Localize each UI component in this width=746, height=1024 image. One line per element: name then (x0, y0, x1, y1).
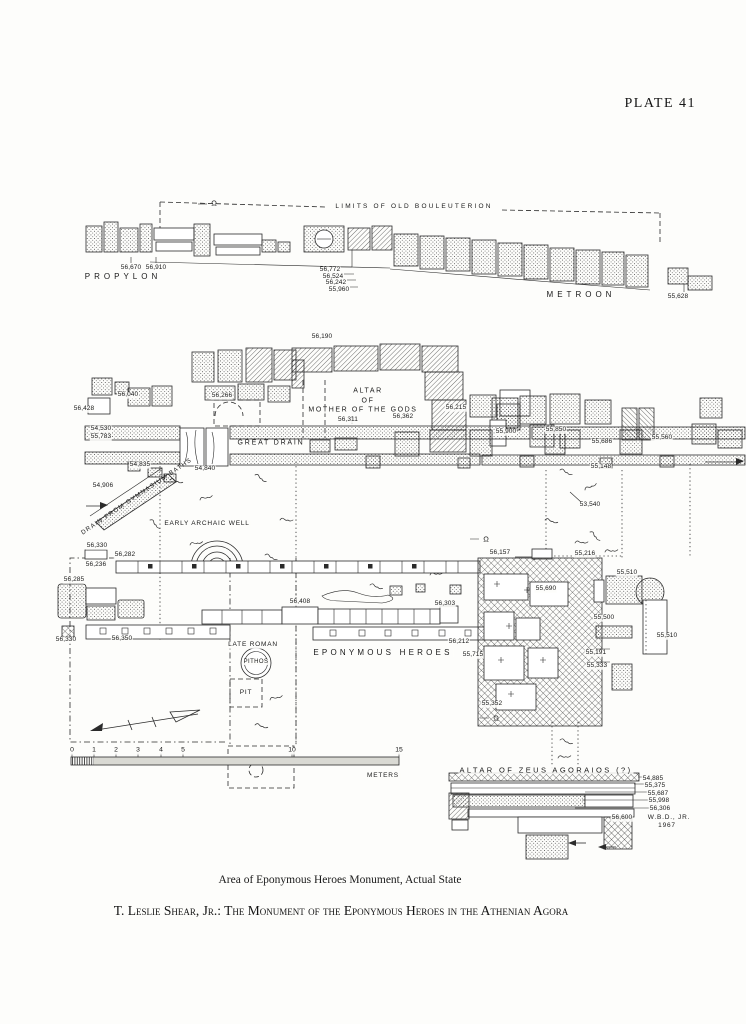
label-great-drain: GREAT DRAIN (237, 440, 306, 447)
elevation-label: 56,910 (145, 265, 167, 272)
label-pithos: PITHOS (243, 659, 270, 665)
elevation-label: 55,850 (545, 427, 567, 434)
elevation-label: 56,266 (211, 393, 233, 400)
elevation-label: 56,350 (111, 636, 133, 643)
elevation-label: 56,285 (63, 577, 85, 584)
plan-labels-layer: LIMITS OF OLD BOULEUTERIONΩPROPYLONMETRO… (0, 0, 746, 1024)
elevation-label: 56,236 (85, 562, 107, 569)
elevation-label: 55,500 (593, 615, 615, 622)
elevation-label: 54,530 (90, 426, 112, 433)
label-early-archaic-well: EARLY ARCHAIC WELL (163, 521, 250, 528)
elevation-label: 56,408 (289, 599, 311, 606)
elevation-label: 55,960 (328, 287, 350, 294)
elevation-label: 55,715 (462, 652, 484, 659)
elevation-label: 55,560 (651, 435, 673, 442)
scale-tick-label: 4 (158, 748, 164, 755)
elevation-label: 55,352 (481, 701, 503, 708)
credit-draftsman: W.B.D., JR. (647, 815, 691, 822)
scale-tick-label: 1 (91, 748, 97, 755)
elevation-label: 56,282 (114, 552, 136, 559)
scale-unit-label: METERS (366, 773, 400, 780)
elevation-label: 56,311 (337, 417, 359, 424)
label-eponymous-heroes: EPONYMOUS HEROES (312, 649, 453, 657)
elevation-label: 56,215 (445, 405, 467, 412)
elevation-label: 56,428 (73, 406, 95, 413)
section-marker-omega: Ω (482, 535, 490, 543)
plan-drawing: LIMITS OF OLD BOULEUTERIONΩPROPYLONMETRO… (0, 0, 746, 1024)
label-altar-of-mother-line1: ALTAR (352, 388, 384, 395)
elevation-label: 56,040 (117, 392, 139, 399)
elevation-label: 55,148 (590, 464, 612, 471)
elevation-label: 55,783 (90, 434, 112, 441)
elevation-label: 55,510 (656, 633, 678, 640)
scale-tick-label: 5 (180, 748, 186, 755)
scale-tick-label: 15 (394, 748, 404, 755)
elevation-label: 56,157 (489, 550, 511, 557)
scale-tick-label: 2 (113, 748, 119, 755)
elevation-label: 55,686 (591, 439, 613, 446)
elevation-label: 56,670 (120, 265, 142, 272)
section-marker-omega: Ω (210, 199, 218, 207)
elevation-label: 54,835 (129, 462, 151, 469)
elevation-label: 55,333 (586, 663, 608, 670)
elevation-label: 56,600 (611, 815, 633, 822)
scale-tick-label: 10 (287, 748, 297, 755)
label-pit: PIT (239, 690, 254, 697)
elevation-label: 56,306 (649, 806, 671, 813)
elevation-label: 53,540 (579, 502, 601, 509)
credit-year: 1967 (657, 823, 677, 830)
elevation-label: 56,303 (434, 601, 456, 608)
section-marker-omega: Ω (492, 714, 500, 722)
plate-caption: Area of Eponymous Heroes Monument, Actua… (218, 874, 461, 886)
elevation-label: 55,900 (495, 429, 517, 436)
label-altar-of-zeus-agoraios: ALTAR OF ZEUS AGORAIOS (?) (459, 766, 634, 774)
label-metroon: METROON (546, 291, 617, 299)
elevation-label: 56,212 (448, 639, 470, 646)
elevation-label: 55,690 (535, 586, 557, 593)
elevation-label: 55,191 (585, 650, 607, 657)
elevation-label: 54,906 (92, 483, 114, 490)
label-propylon: PROPYLON (84, 273, 162, 281)
elevation-label: 55,510 (616, 570, 638, 577)
elevation-label: 55,628 (667, 294, 689, 301)
label-altar-of-mother-line2: OF (361, 398, 376, 405)
elevation-label: 56,362 (392, 414, 414, 421)
elevation-label: 54,840 (194, 466, 216, 473)
elevation-label: 55,998 (648, 798, 670, 805)
elevation-label: 56,330 (86, 543, 108, 550)
elevation-label: 56,190 (311, 334, 333, 341)
elevation-label: 55,375 (644, 783, 666, 790)
scale-tick-label: 3 (135, 748, 141, 755)
label-limits-of-old-bouleuterion: LIMITS OF OLD BOULEUTERION (334, 204, 493, 211)
elevation-label: 55,216 (574, 551, 596, 558)
label-late-roman: LATE ROMAN (227, 642, 279, 649)
scale-tick-label: 0 (69, 748, 75, 755)
elevation-label: 56,330 (55, 637, 77, 644)
plate-page: PLATE 41 (0, 0, 746, 1024)
plate-footer: T. Leslie Shear, Jr.: The Monument of th… (114, 903, 569, 919)
